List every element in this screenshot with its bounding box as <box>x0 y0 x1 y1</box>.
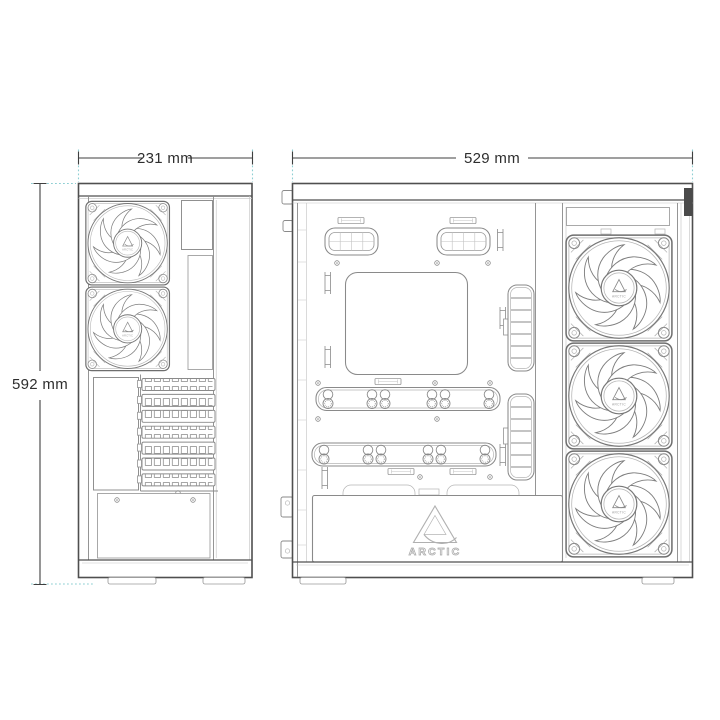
dimension-rear-width: 231 mm <box>79 150 253 167</box>
rear-view <box>79 184 253 585</box>
expansion-slot <box>138 410 216 422</box>
dimension-height: 592 mm <box>12 184 68 585</box>
case-foot <box>300 578 346 585</box>
case-foot <box>203 578 245 585</box>
case-foot <box>108 578 156 585</box>
arctic-logo-text: ARCTIC <box>409 546 462 558</box>
side-fan-3 <box>566 451 672 557</box>
rear-thumbscrews <box>281 191 293 559</box>
case-foot <box>642 578 674 585</box>
expansion-slot <box>138 458 216 470</box>
rear-lower-vent-grid <box>94 378 139 491</box>
height-label: 592 mm <box>12 376 68 393</box>
psu-panel <box>98 494 211 559</box>
cpu-cutout <box>346 273 468 375</box>
rear-top-vent-grid <box>182 201 213 250</box>
io-panel-area <box>188 256 213 370</box>
side-fan-2 <box>566 343 672 449</box>
side-fan-1 <box>566 235 672 341</box>
expansion-slot <box>138 379 216 391</box>
vertical-grommet-upper <box>504 285 535 371</box>
psu-shroud: ARCTIC <box>313 485 563 562</box>
front-fan-column <box>566 208 672 557</box>
diagram-canvas: ARCTIC <box>0 0 720 720</box>
expansion-slot <box>138 426 216 438</box>
cable-grommet-right <box>437 228 490 255</box>
dimension-side-width: 529 mm <box>293 150 694 167</box>
expansion-slot <box>138 442 216 454</box>
rear-width-label: 231 mm <box>137 150 193 167</box>
fan-bracket <box>567 208 670 226</box>
mobo-rail-lower <box>312 443 496 466</box>
corner-accent <box>684 188 693 216</box>
rear-fan-top <box>86 201 170 285</box>
vertical-grommet-lower <box>504 394 535 480</box>
expansion-slot <box>138 474 216 486</box>
mobo-rail-upper <box>316 388 500 411</box>
side-view: ARCTIC <box>281 184 693 585</box>
cable-grommet-left <box>325 228 378 255</box>
expansion-slot <box>138 394 216 406</box>
rear-fan-bottom <box>86 287 170 371</box>
side-width-label: 529 mm <box>464 150 520 167</box>
